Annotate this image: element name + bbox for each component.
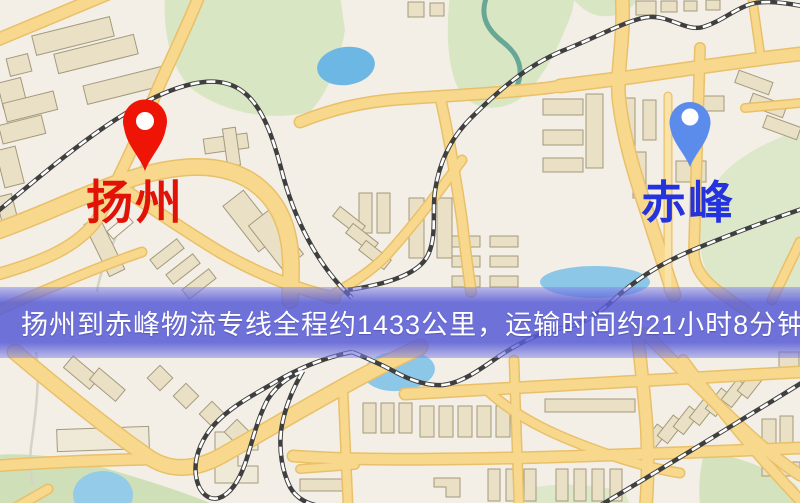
origin-label: 扬州 <box>86 178 184 230</box>
origin-pin-hole <box>136 112 154 130</box>
route-banner-text: 扬州到赤峰物流专线全程约1433公里，运输时间约21小时8分钟. <box>0 303 800 342</box>
map-canvas[interactable]: 扬州 赤峰 <box>0 0 800 503</box>
destination-label: 赤峰 <box>641 178 735 228</box>
destination-pin-hole <box>682 109 699 126</box>
map-screenshot: 扬州 赤峰 扬州到赤峰物流专线全程约1433公里，运输时间约21小时8分钟. <box>0 0 800 503</box>
route-banner: 扬州到赤峰物流专线全程约1433公里，运输时间约21小时8分钟. <box>0 287 800 358</box>
